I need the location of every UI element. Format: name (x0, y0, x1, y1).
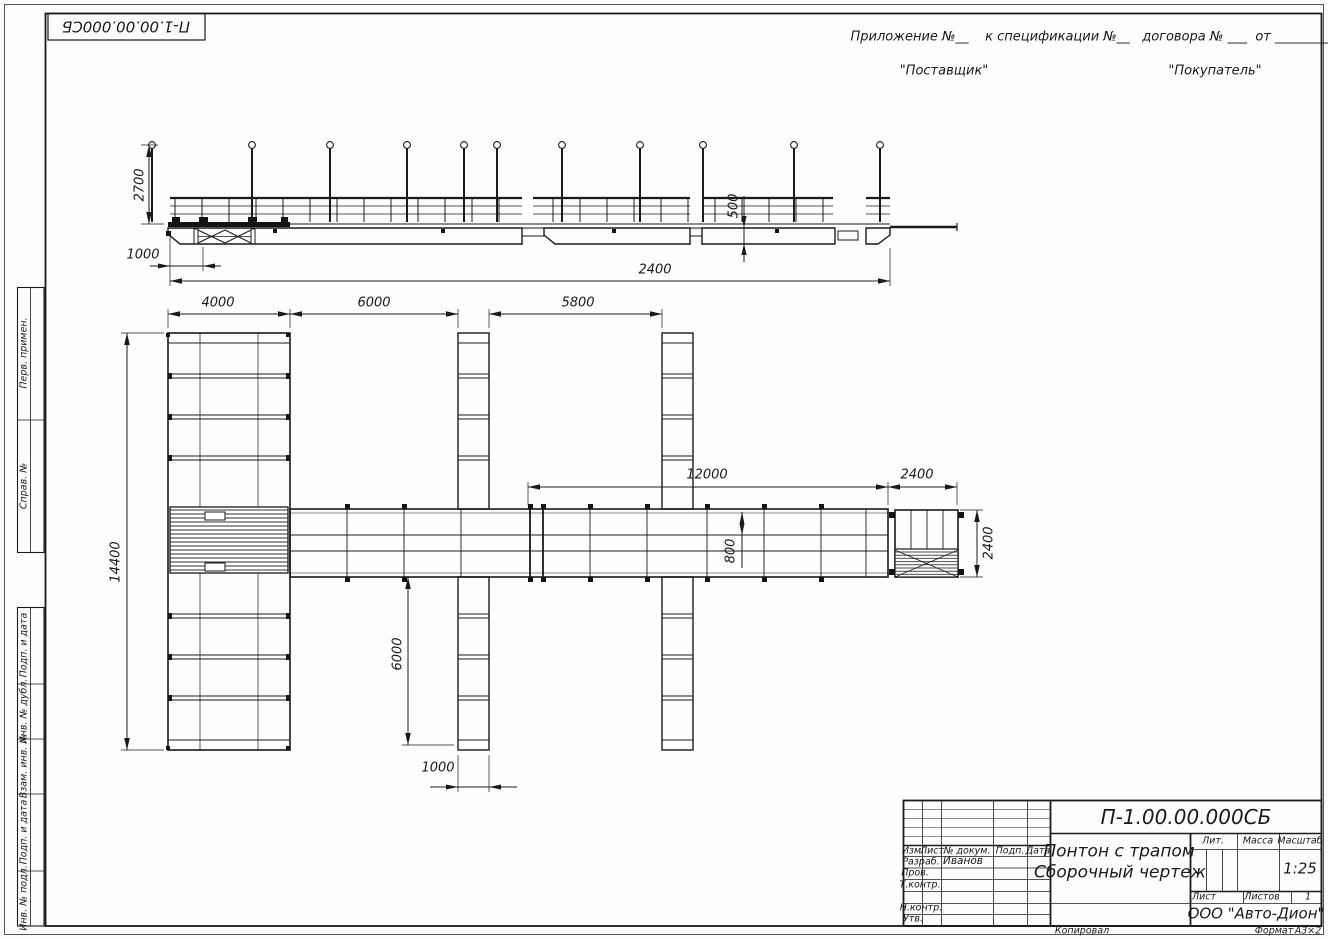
dim-total-length: 2400 (638, 264, 671, 277)
dim-ramp-offset: 1000 (126, 249, 159, 262)
plan-view (166, 333, 964, 750)
lit-label: Лит. (1202, 836, 1224, 846)
sheets-value: 1 (1305, 892, 1311, 902)
dim-gangway-length: 2400 (900, 469, 933, 482)
dim-overall-width: 14400 (110, 541, 123, 582)
dim-post-height: 2700 (134, 168, 147, 201)
row-utv: Утв. (903, 914, 923, 924)
row-t-kontr: Т.контр. (899, 880, 940, 890)
dim-bay2: 5800 (561, 297, 594, 310)
dim-walkway-length: 12000 (686, 469, 727, 482)
row-n-kontr: Н.контр. (900, 903, 943, 913)
copied-label: Копировал (1055, 926, 1109, 936)
title-block-name-line1: Понтон с трапом (1043, 844, 1194, 861)
dim-finger-width: 1000 (421, 762, 454, 775)
company-name: ООО "Авто-Дион" (1188, 907, 1325, 922)
dim-gangway-width: 2400 (983, 526, 996, 559)
margin-label-perv-primen: Перв. примен. (19, 317, 29, 388)
masshtab-label: Масштаб (1277, 836, 1322, 846)
col-list: Лист (920, 846, 944, 856)
drawing-linework (0, 0, 1328, 939)
sheet-frame (5, 5, 1324, 935)
row-razrab: Разраб. (902, 857, 939, 867)
dim-draft: 500 (728, 194, 741, 219)
format-value: А3×2 (1295, 926, 1322, 936)
buyer-label: "Покупатель" (1168, 65, 1261, 78)
title-block-name-line2: Сборочный чертеж (1034, 865, 1206, 882)
title-block-doc-number: П-1.00.00.000СБ (1101, 807, 1272, 827)
razrab-name: Иванов (943, 856, 983, 867)
massa-label: Масса (1243, 836, 1273, 846)
elevation-view (149, 142, 957, 244)
format-label: Формат (1255, 926, 1294, 936)
contract-note: Приложение №__ к спецификации №__ догово… (851, 31, 1328, 44)
sheets-label: Листов (1244, 892, 1280, 902)
col-podp: Подп. (996, 846, 1025, 856)
drawing-sheet: П-1.00.00.000СБ Приложение №__ к специфи… (0, 0, 1328, 939)
margin-label-podp-data-2: Подп. и дата (19, 800, 29, 865)
col-data: Дата (1026, 846, 1051, 856)
dim-bay1: 6000 (357, 297, 390, 310)
margin-label-sprav-no: Справ. № (19, 463, 29, 509)
margin-label-vzam-inv: Взам. инв. № (19, 734, 29, 799)
margin-label-podp-data-1: Подп. и дата (19, 613, 29, 678)
supplier-label: "Поставщик" (900, 65, 989, 78)
dim-pier-width: 4000 (201, 297, 234, 310)
row-prov: Пров. (901, 868, 929, 878)
dim-walkway-width: 800 (725, 539, 738, 564)
sheet-label: Лист (1192, 892, 1216, 902)
scale-value: 1:25 (1283, 862, 1317, 877)
margin-label-inv-podl: Инв. № подл. (19, 865, 29, 931)
top-left-stamp: П-1.00.00.000СБ (62, 19, 190, 34)
dim-finger-length: 6000 (392, 637, 405, 670)
